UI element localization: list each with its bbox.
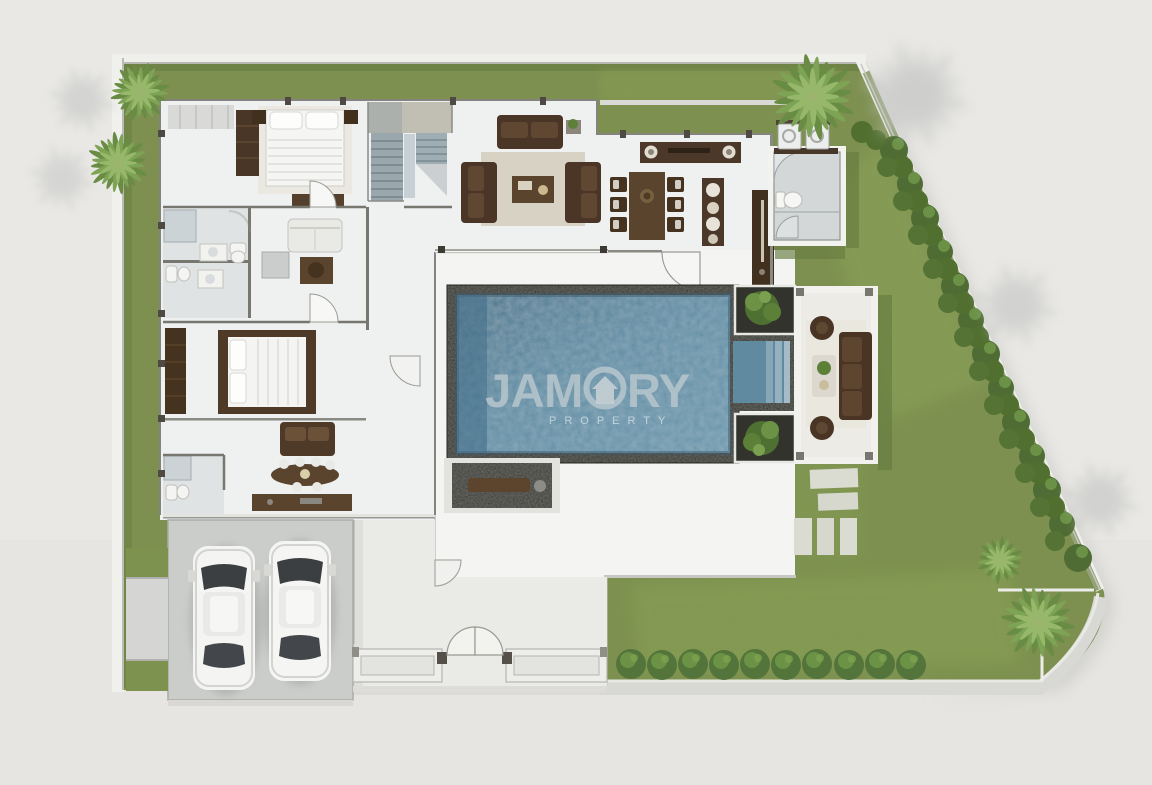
- svg-text:PROPERTY: PROPERTY: [549, 415, 673, 427]
- svg-text:JAM: JAM: [485, 364, 583, 417]
- svg-text:RY: RY: [627, 364, 690, 417]
